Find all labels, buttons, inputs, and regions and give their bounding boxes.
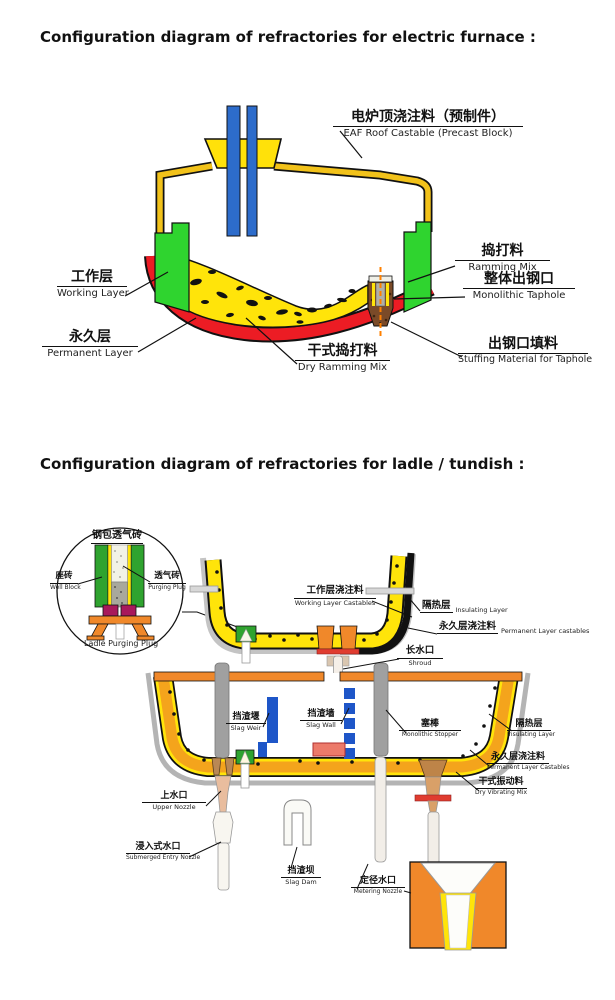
label-dry-ramming-zh: 干式捣打料: [295, 343, 390, 361]
label-working-layer: 工作层 Working Layer: [57, 269, 127, 300]
label-inset-title-zh: 钢包透气砖: [91, 530, 143, 544]
label-working-layer-en: Working Layer: [57, 287, 127, 300]
label-working-castables: 工作层浇注料 Working Layer Castables: [294, 586, 376, 607]
label-sen: 浸入式水口 Submerged Entry Nozzle: [126, 842, 190, 862]
label-tundish-insulating: 隔热层 Insulating Layer: [507, 719, 551, 739]
label-dry-vibrating-en: Dry Vibrating Mix: [475, 789, 527, 797]
label-inset-title: 钢包透气砖: [91, 530, 143, 544]
furnace-shell: [160, 166, 428, 252]
label-purging-plug: 透气砖 Purging Plug: [148, 572, 186, 592]
label-eaf-roof: 电炉顶浇注料（预制件） EAF Roof Castable (Precast B…: [333, 109, 523, 140]
slag-wall-dashed: [344, 688, 355, 759]
label-shroud: 长水口 Shroud: [397, 646, 443, 667]
label-monolithic-taphole: 整体出钢口 Monolithic Taphole: [463, 271, 575, 302]
label-well-block-zh: 座砖: [50, 572, 78, 584]
label-purging-plug-zh: 透气砖: [148, 572, 186, 584]
label-shroud-zh: 长水口: [397, 646, 443, 659]
label-tundish-permanent: 永久层浇注料 Permanent Layer Castables: [487, 752, 549, 772]
label-stuffing-en: Stuffing Material for Taphole: [458, 354, 588, 366]
ladle-tundish-diagram: [0, 500, 615, 990]
metering-nozzle-inset: [410, 862, 506, 950]
label-ladle-insulating-en: Insulating Layer: [456, 607, 508, 614]
label-permanent-layer-en: Permanent Layer: [42, 347, 138, 360]
label-upper-nozzle: 上水口 Upper Nozzle: [142, 791, 206, 812]
label-slag-dam-zh: 挡渣坝: [281, 866, 321, 878]
label-working-layer-zh: 工作层: [57, 269, 127, 287]
label-ladle-insulating: 隔热层 Insulating Layer: [420, 601, 508, 613]
label-well-block: 座砖 Well Block: [50, 572, 78, 592]
label-sen-zh: 浸入式水口: [126, 842, 190, 854]
eaf-roof-block: [205, 139, 281, 168]
label-dry-ramming: 干式捣打料 Dry Ramming Mix: [295, 343, 390, 374]
taphole: [368, 267, 393, 338]
label-tundish-insulating-en: Insulating Layer: [507, 731, 551, 739]
label-tundish-permanent-en: Permanent Layer Castables: [487, 764, 549, 772]
label-stuffing: 出钢口填料 Stuffing Material for Taphole: [458, 336, 588, 366]
label-ladle-permanent-en: Permanent Layer castables: [501, 628, 589, 635]
electrodes: [227, 106, 257, 236]
label-slag-dam: 挡渣坝 Slag Dam: [281, 866, 321, 887]
label-dry-vibrating-zh: 干式振动料: [475, 777, 527, 789]
label-eaf-roof-en: EAF Roof Castable (Precast Block): [333, 127, 523, 140]
impact-pad: [313, 743, 345, 756]
label-dry-ramming-en: Dry Ramming Mix: [295, 361, 390, 374]
stopper-right: [374, 663, 388, 756]
label-metering-nozzle-zh: 定径水口: [351, 876, 405, 888]
label-inset-caption-en: Ladle Purging Plug: [84, 638, 158, 648]
label-shroud-en: Shroud: [397, 659, 443, 667]
label-metering-nozzle: 定径水口 Metering Nozzle: [351, 876, 405, 896]
stopper-left: [215, 663, 229, 758]
label-tundish-insulating-zh: 隔热层: [507, 719, 551, 731]
label-ramming-mix-zh: 捣打料: [455, 243, 550, 261]
label-ladle-permanent-zh: 永久层浇注料: [437, 622, 498, 634]
label-slag-weir-zh: 挡渣堰: [226, 712, 266, 724]
label-ladle-insulating-zh: 隔热层: [420, 601, 453, 613]
label-inset-caption: Ladle Purging Plug: [84, 638, 158, 648]
label-ladle-permanent: 永久层浇注料 Permanent Layer castables: [437, 622, 589, 634]
label-eaf-roof-zh: 电炉顶浇注料（预制件）: [333, 109, 523, 127]
label-slag-wall-zh: 挡渣墙: [300, 709, 342, 721]
label-sen-en: Submerged Entry Nozzle: [126, 854, 190, 862]
page: Configuration diagram of refractories fo…: [0, 0, 615, 1000]
label-slag-weir: 挡渣堰 Slag Weir: [226, 712, 266, 733]
label-upper-nozzle-zh: 上水口: [142, 791, 206, 803]
label-purging-plug-en: Purging Plug: [148, 584, 186, 592]
label-slag-wall-en: Slag Wall: [300, 721, 342, 729]
label-upper-nozzle-en: Upper Nozzle: [142, 803, 206, 811]
label-tundish-permanent-zh: 永久层浇注料: [487, 752, 549, 764]
ladle-title: Configuration diagram of refractories fo…: [40, 455, 525, 473]
label-slag-dam-en: Slag Dam: [281, 878, 321, 886]
slag-weir-bar: [267, 697, 278, 743]
furnace-title: Configuration diagram of refractories fo…: [40, 28, 536, 46]
label-slag-weir-en: Slag Weir: [226, 724, 266, 732]
label-permanent-layer: 永久层 Permanent Layer: [42, 329, 138, 360]
label-stopper-en: Monolithic Stopper: [399, 731, 461, 739]
label-permanent-layer-zh: 永久层: [42, 329, 138, 347]
label-stuffing-zh: 出钢口填料: [458, 336, 588, 354]
label-monolithic-taphole-en: Monolithic Taphole: [463, 289, 575, 302]
label-slag-wall: 挡渣墙 Slag Wall: [300, 709, 342, 730]
label-stopper-zh: 塞棒: [399, 719, 461, 731]
label-monolithic-taphole-zh: 整体出钢口: [463, 271, 575, 289]
label-well-block-en: Well Block: [50, 584, 78, 592]
label-working-castables-en: Working Layer Castables: [294, 599, 376, 607]
label-ramming-mix: 捣打料 Ramming Mix: [455, 243, 550, 274]
label-dry-vibrating: 干式振动料 Dry Vibrating Mix: [475, 777, 527, 797]
label-working-castables-zh: 工作层浇注料: [294, 586, 376, 599]
label-stopper: 塞棒 Monolithic Stopper: [399, 719, 461, 739]
tundish: [148, 663, 528, 890]
label-metering-nozzle-en: Metering Nozzle: [351, 888, 405, 896]
